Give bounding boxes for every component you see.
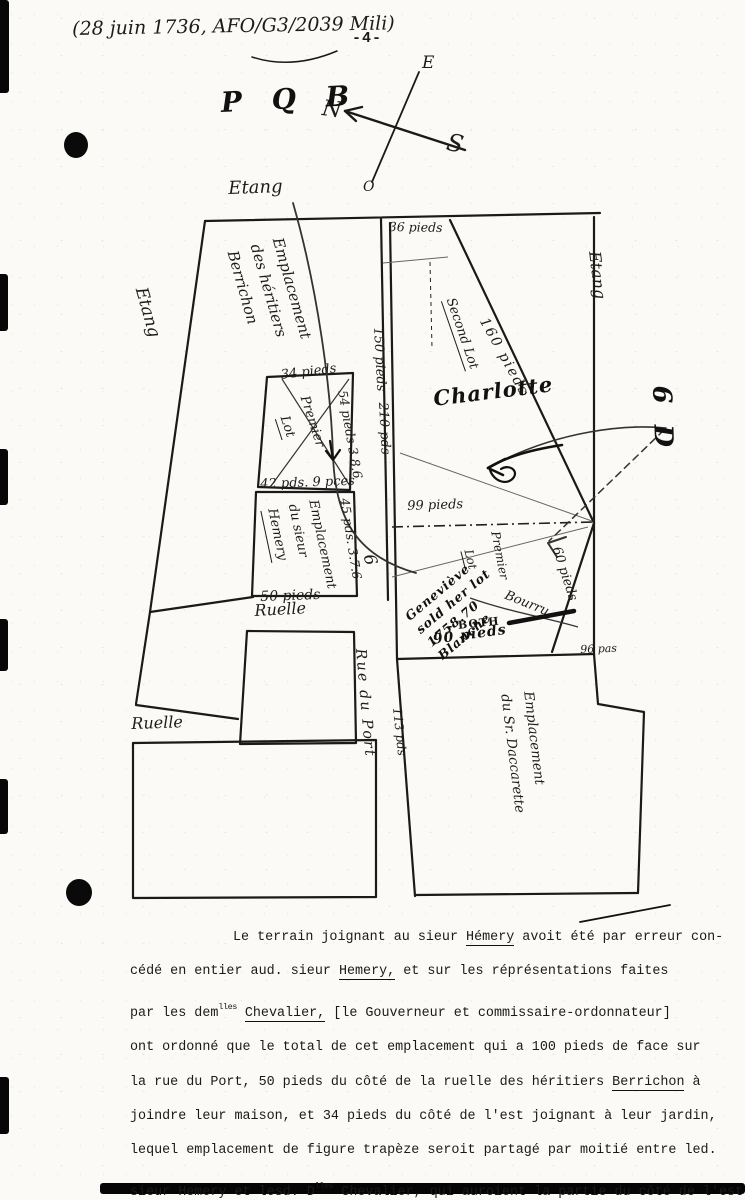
compass-east-label: E (422, 53, 434, 73)
typed-line: la rue du Port, 50 pieds du côté de la r… (130, 1066, 742, 1100)
typed-paragraph: Le terrain joignant au sieur Hémery avoi… (130, 921, 742, 1200)
underlined-name: Berrichon (612, 1075, 684, 1091)
typed-line: ont ordonné que le total de cet emplacem… (130, 1031, 742, 1065)
typed-text: ont ordonné que le total de cet emplacem… (130, 1040, 701, 1055)
typed-line: Le terrain joignant au sieur Hémery avoi… (130, 921, 742, 955)
compass-west-label: O (363, 179, 374, 196)
typed-text: cédé en entier aud. sieur (130, 964, 339, 979)
underlined-name: Chevalier, (341, 1185, 421, 1200)
typed-text: Le terrain joignant au sieur (233, 930, 466, 945)
corner-stray-stroke (580, 905, 670, 922)
typed-line: joindre leur maison, et 34 pieds du côté… (130, 1100, 742, 1134)
typed-text: sieur (130, 1185, 178, 1200)
typed-text: par les dem (130, 1006, 218, 1021)
measure-42-pds: 42 pds. 9 pces (260, 474, 355, 493)
typed-text (237, 1006, 245, 1021)
measure-99-pieds: 99 pieds (407, 497, 463, 515)
typed-text: et lesd. D (226, 1185, 314, 1200)
typed-line: cédé en entier aud. sieur Hemery, et sur… (130, 955, 742, 989)
typed-text: lequel emplacement de figure trapèze ser… (130, 1143, 717, 1158)
underlined-name: Hémery (466, 930, 514, 946)
ruelle-2-label: Ruelle (131, 712, 183, 733)
typed-text: joindre leur maison, et 34 pieds du côté… (130, 1109, 717, 1124)
superscript-text: lles (315, 1181, 333, 1191)
measure-150-pieds: 150 pieds (369, 327, 388, 392)
superscript-text: lles (218, 1002, 236, 1012)
typed-line: lequel emplacement de figure trapèze ser… (130, 1134, 742, 1168)
typed-text: [le Gouverneur et commissaire-ordonnateu… (325, 1006, 671, 1021)
typed-line: sieur Hemery et lesd. Dlles Chevalier, q… (130, 1169, 742, 1200)
plan-outlines (133, 213, 644, 898)
scanned-archive-page: (28 juin 1736, AFO/G3/2039 Mili) -4- E N… (0, 0, 745, 1200)
underlined-name: Hemery (178, 1185, 226, 1200)
typed-text: la rue du Port, 50 pieds du côté de la r… (130, 1075, 612, 1090)
ruelle-1-label: Ruelle (254, 598, 306, 620)
etang-top-label: Etang (228, 176, 283, 199)
underlined-name: Hemery, (339, 964, 395, 980)
header-underline-curve (252, 51, 337, 62)
typed-text: et sur les réprésentations faites (395, 964, 668, 979)
typed-text: qui auroient la partie du côté de l'est (422, 1185, 743, 1200)
measure-36-pieds: 36 pieds (389, 219, 443, 235)
typed-text: à (684, 1075, 700, 1090)
margin-mark-annotation: 6 D (645, 385, 679, 454)
typed-text: avoit été par erreur con- (514, 930, 723, 945)
curve-to-margin-mark (497, 427, 666, 463)
hook-arrow (488, 445, 562, 468)
page-number: -4- (352, 30, 382, 48)
measure-210-pds: 210 pds (374, 402, 392, 455)
typed-line: par les demlles Chevalier, [le Gouverneu… (130, 990, 742, 1031)
measure-96-pas: 96 pas (580, 642, 617, 656)
underlined-name: Chevalier, (245, 1006, 325, 1022)
